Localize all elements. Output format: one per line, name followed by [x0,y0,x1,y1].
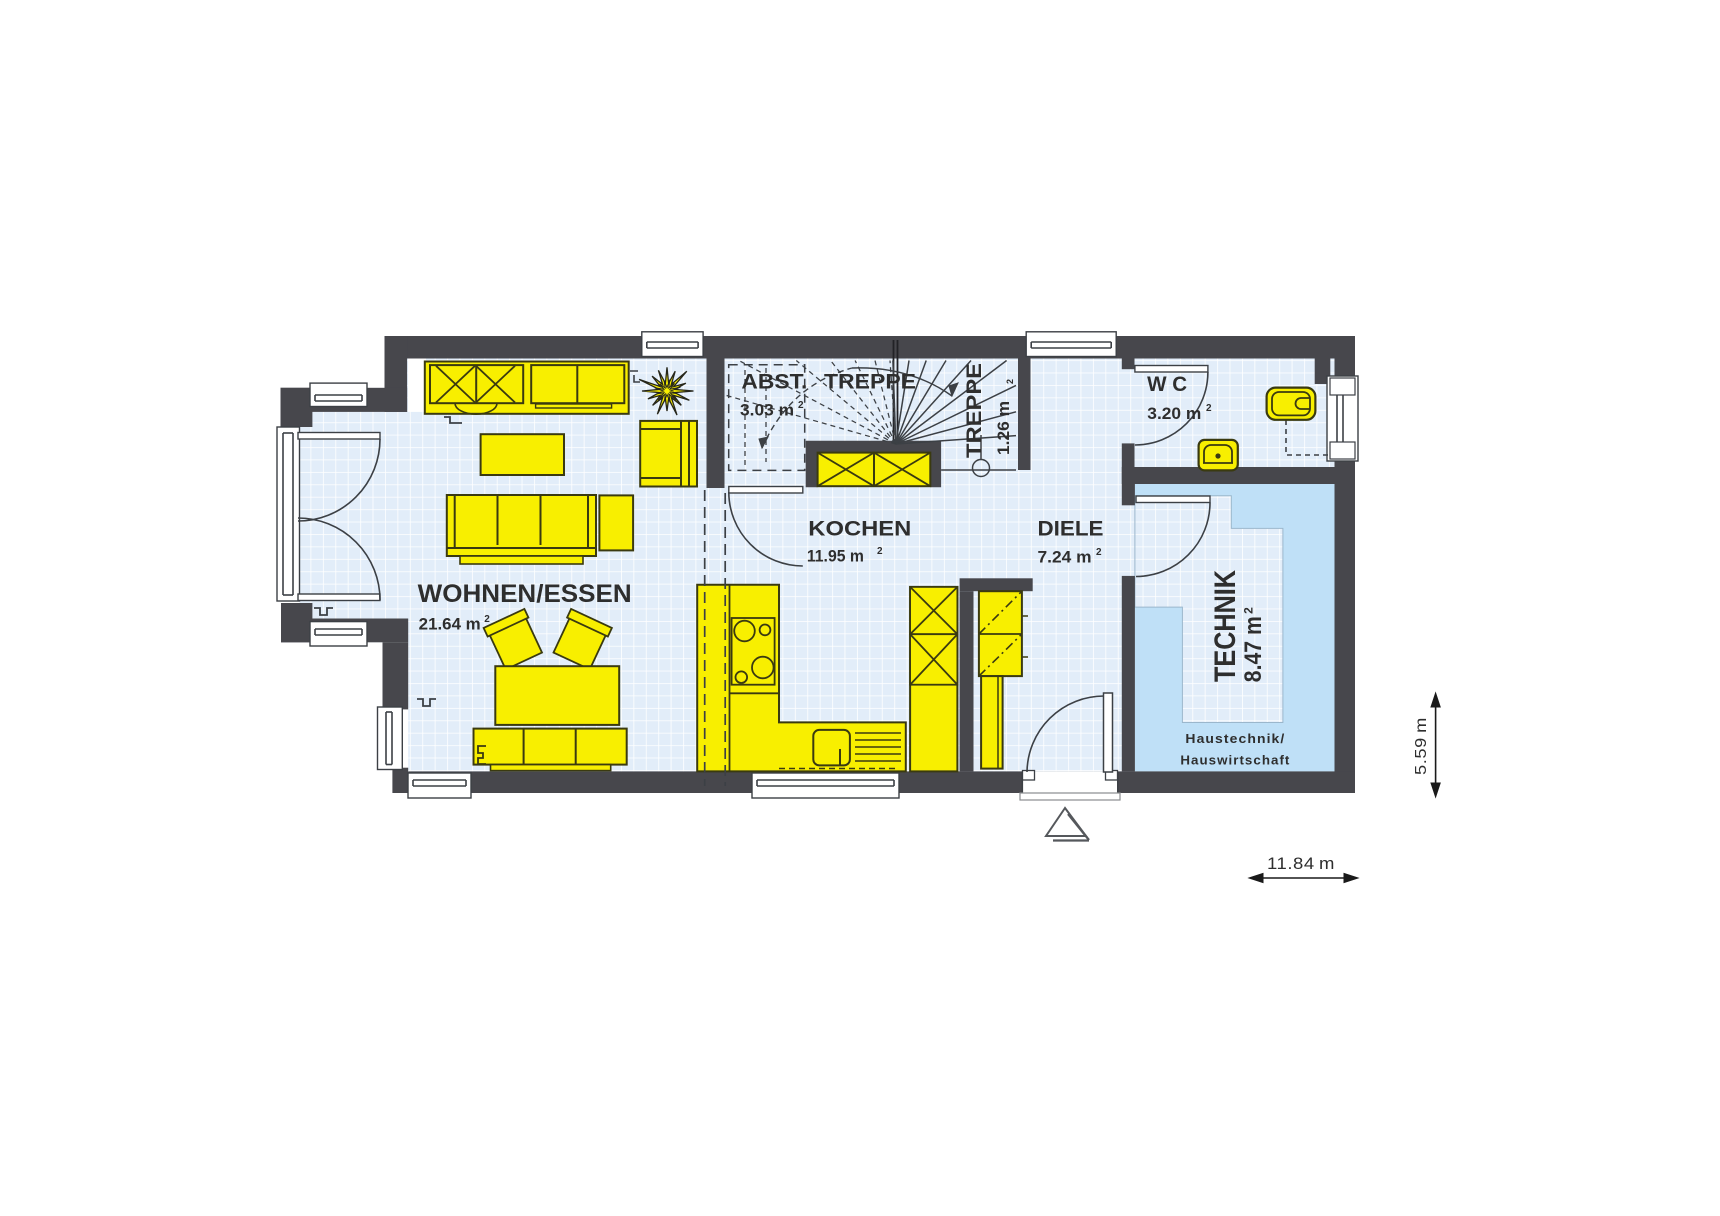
svg-text:KOCHEN: KOCHEN [808,518,911,541]
svg-text:2: 2 [1242,607,1256,614]
svg-text:3.20 m: 3.20 m [1147,405,1201,423]
svg-text:Hauswirtschaft: Hauswirtschaft [1180,753,1290,768]
svg-text:2: 2 [1005,379,1015,384]
svg-text:Haustechnik/: Haustechnik/ [1185,731,1285,746]
svg-text:TREPPE: TREPPE [963,363,986,458]
svg-text:WOHNEN/ESSEN: WOHNEN/ESSEN [418,580,632,608]
svg-text:8.47 m: 8.47 m [1240,616,1267,682]
svg-text:1.26 m: 1.26 m [995,401,1013,455]
svg-text:2: 2 [877,546,883,557]
svg-text:11.84 m: 11.84 m [1267,855,1335,873]
svg-text:21.64 m: 21.64 m [419,616,481,634]
svg-text:W C: W C [1147,373,1187,396]
svg-text:7.24 m: 7.24 m [1038,549,1092,567]
svg-text:5.59 m: 5.59 m [1413,717,1430,775]
svg-text:ABST.: ABST. [741,370,807,393]
svg-text:2: 2 [484,614,490,625]
svg-text:2: 2 [798,400,804,411]
svg-text:DIELE: DIELE [1038,518,1104,541]
svg-text:2: 2 [1206,403,1212,414]
svg-text:11.95 m: 11.95 m [807,548,864,566]
svg-text:TREPPE: TREPPE [824,370,916,393]
svg-text:2: 2 [1096,547,1102,558]
svg-text:TECHNIK: TECHNIK [1209,570,1242,682]
svg-text:3.03 m: 3.03 m [740,402,794,420]
